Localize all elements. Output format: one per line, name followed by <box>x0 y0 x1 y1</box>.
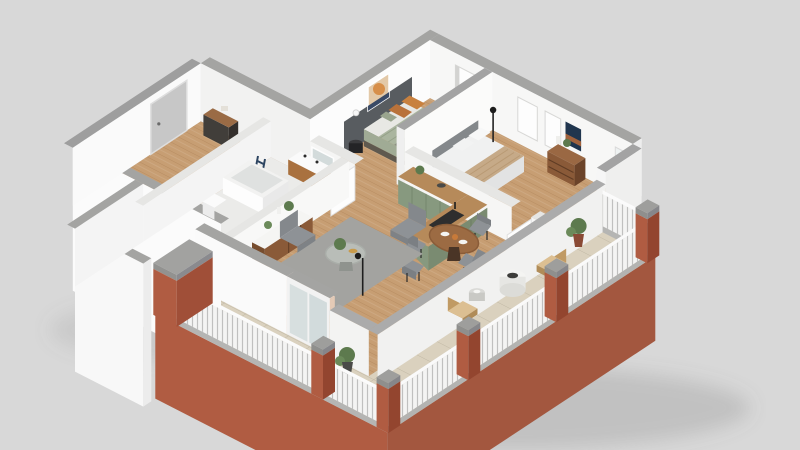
pier-corner-ne <box>636 199 660 263</box>
console-vase <box>212 100 217 107</box>
dresser-plant <box>563 139 571 147</box>
plate-1 <box>441 232 450 236</box>
console-books <box>221 106 228 111</box>
pier-se-2 <box>457 316 481 380</box>
sideboard-vase <box>277 207 281 214</box>
pier-body-side <box>647 211 659 263</box>
balcony-side-table-body <box>469 293 485 301</box>
living-southwest-wall-end <box>143 258 151 406</box>
pier-corner-south <box>377 369 401 433</box>
pier-se-1 <box>545 258 569 322</box>
door-handle <box>157 122 160 125</box>
balcony-table-tray <box>507 273 518 279</box>
gold-bowl <box>349 249 358 253</box>
nightstand-body <box>349 143 363 153</box>
balcony-side-table-cup <box>473 290 480 294</box>
vanity-tap-2 <box>316 161 319 164</box>
wall-lamp <box>353 110 359 116</box>
pier-sw-mid <box>311 336 335 400</box>
sideboard-plant-1 <box>284 201 294 211</box>
master-poster-sun <box>373 83 385 95</box>
pier-body-front <box>636 213 648 263</box>
plate-2 <box>459 240 468 244</box>
counter-plant <box>415 166 424 175</box>
balcony-table-base <box>500 283 526 297</box>
glass-pane-1 <box>290 284 308 342</box>
sideboard-plant-2 <box>264 221 272 229</box>
dining-table-base <box>447 247 461 261</box>
coffee-table-base <box>339 262 353 271</box>
vanity-tap-1 <box>304 155 307 158</box>
living-lamp-head <box>355 253 361 259</box>
floor-lamp-head <box>490 107 496 113</box>
counter-bowl <box>437 183 446 187</box>
fruit-bowl <box>452 234 458 240</box>
floor-plan-stage <box>0 0 800 450</box>
floor-plan-render <box>0 0 800 450</box>
dresser-vase <box>556 136 561 144</box>
coffee-table-plant <box>334 238 346 250</box>
